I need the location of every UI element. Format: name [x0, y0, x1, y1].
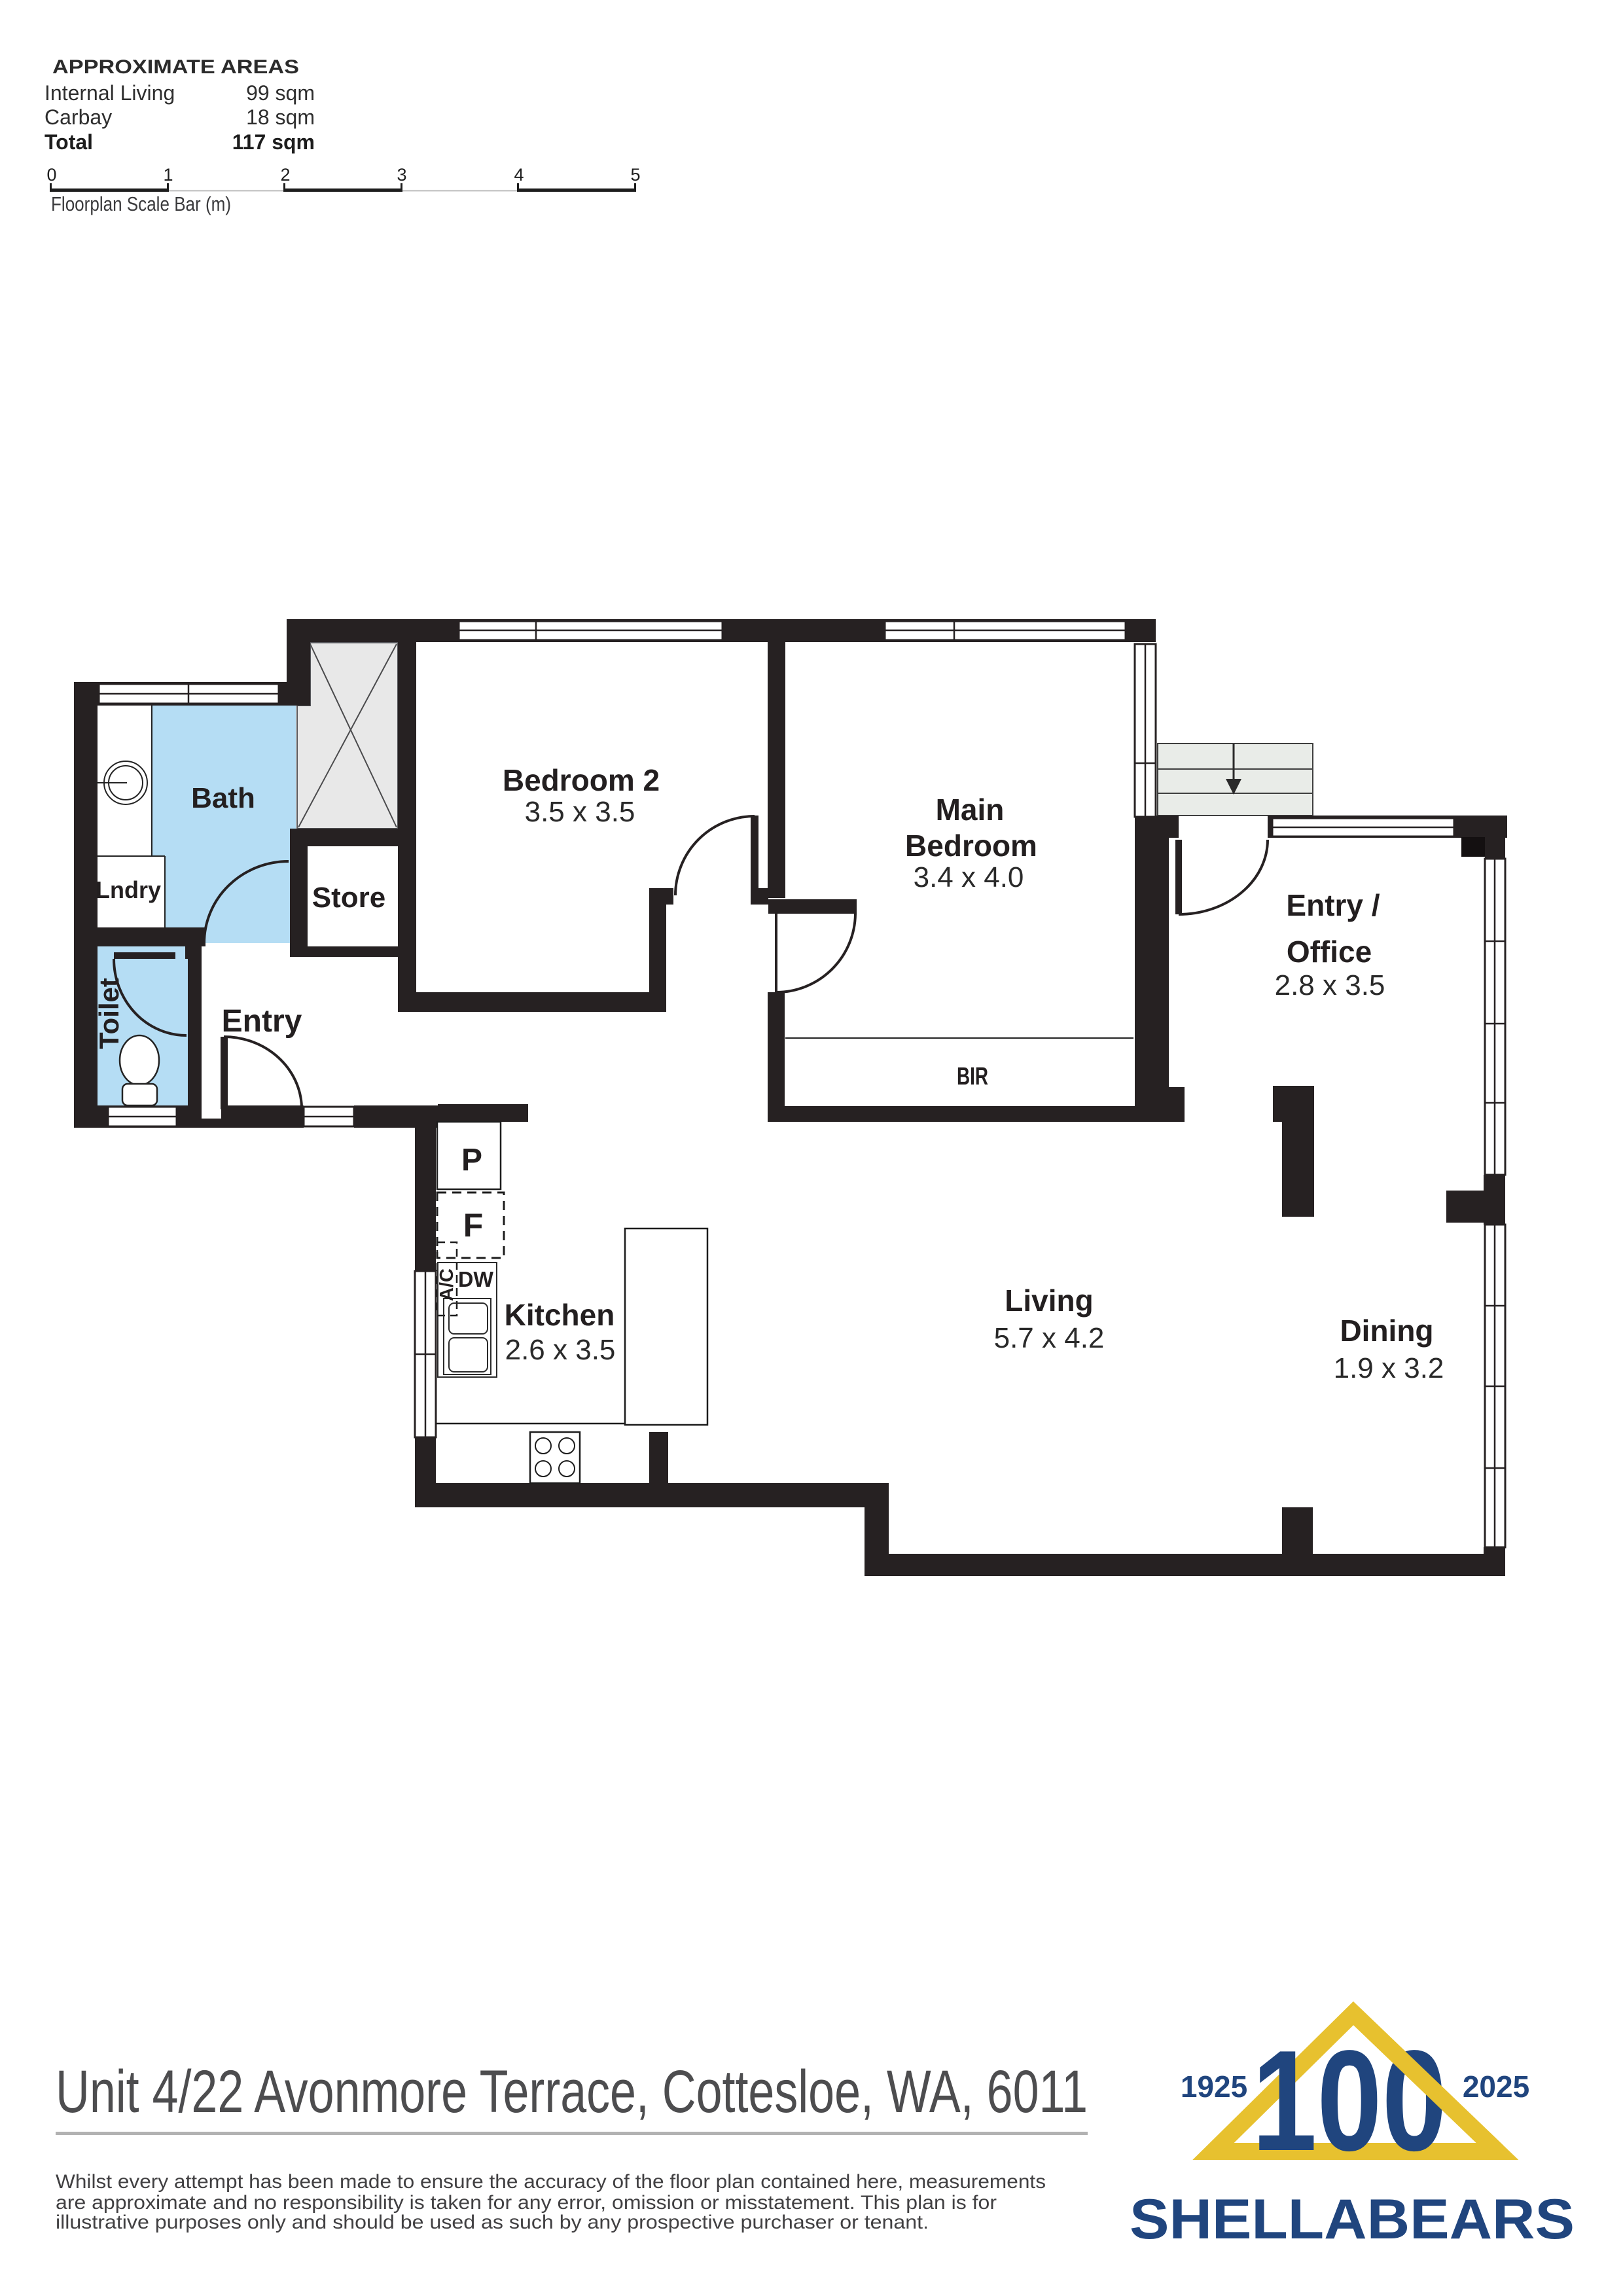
svg-text:illustrative purposes only and: illustrative purposes only and should be…	[56, 2212, 929, 2233]
svg-text:1.9 x 3.2: 1.9 x 3.2	[1334, 1352, 1444, 1384]
svg-text:117 sqm: 117 sqm	[232, 130, 315, 154]
svg-text:Unit 4/22 Avonmore Terrace, Co: Unit 4/22 Avonmore Terrace, Cottesloe, W…	[56, 2058, 1088, 2125]
svg-text:Bedroom: Bedroom	[905, 829, 1037, 863]
svg-text:3: 3	[397, 165, 406, 185]
svg-text:Office: Office	[1287, 935, 1372, 969]
svg-text:2025: 2025	[1463, 2070, 1529, 2104]
svg-text:3.4 x 4.0: 3.4 x 4.0	[914, 861, 1024, 893]
svg-text:are approximate and no respons: are approximate and no responsibility is…	[56, 2192, 997, 2214]
svg-text:Lndry: Lndry	[96, 876, 161, 903]
svg-text:APPROXIMATE AREAS: APPROXIMATE AREAS	[52, 56, 299, 78]
svg-text:Floorplan Scale Bar (m): Floorplan Scale Bar (m)	[51, 192, 231, 215]
svg-text:Carbay: Carbay	[45, 105, 112, 129]
svg-text:2.6 x 3.5: 2.6 x 3.5	[505, 1334, 616, 1366]
svg-text:Whilst every attempt has been: Whilst every attempt has been made to en…	[56, 2171, 1046, 2193]
svg-text:2: 2	[280, 165, 290, 185]
svg-text:Bath: Bath	[191, 782, 255, 814]
svg-text:P: P	[461, 1143, 482, 1177]
svg-text:Entry: Entry	[222, 1004, 302, 1039]
svg-text:4: 4	[514, 165, 524, 185]
svg-text:SHELLABEARS: SHELLABEARS	[1130, 2188, 1575, 2251]
svg-text:Bedroom 2: Bedroom 2	[503, 763, 660, 797]
svg-text:99 sqm: 99 sqm	[246, 81, 315, 105]
svg-text:0: 0	[46, 165, 56, 185]
svg-text:Toilet: Toilet	[94, 978, 124, 1049]
svg-text:BIR: BIR	[957, 1063, 988, 1090]
svg-text:Dining: Dining	[1340, 1314, 1433, 1348]
svg-text:DW: DW	[458, 1267, 494, 1291]
svg-text:Main: Main	[936, 793, 1005, 827]
svg-text:Internal Living: Internal Living	[45, 81, 175, 105]
svg-text:3.5 x 3.5: 3.5 x 3.5	[525, 796, 635, 828]
svg-text:Kitchen: Kitchen	[505, 1298, 615, 1332]
svg-text:5.7 x 4.2: 5.7 x 4.2	[994, 1322, 1105, 1354]
svg-text:Total: Total	[45, 130, 93, 154]
svg-text:2.8 x 3.5: 2.8 x 3.5	[1275, 969, 1385, 1001]
svg-text:18 sqm: 18 sqm	[246, 105, 315, 129]
svg-text:A/C: A/C	[437, 1268, 457, 1301]
svg-text:F: F	[463, 1207, 484, 1244]
svg-text:Store: Store	[312, 882, 385, 914]
svg-text:Living: Living	[1005, 1283, 1093, 1318]
svg-text:1925: 1925	[1181, 2070, 1247, 2104]
svg-text:5: 5	[630, 165, 640, 185]
svg-text:1: 1	[163, 165, 173, 185]
svg-text:100: 100	[1252, 2021, 1447, 2181]
svg-text:Entry /: Entry /	[1286, 888, 1380, 922]
